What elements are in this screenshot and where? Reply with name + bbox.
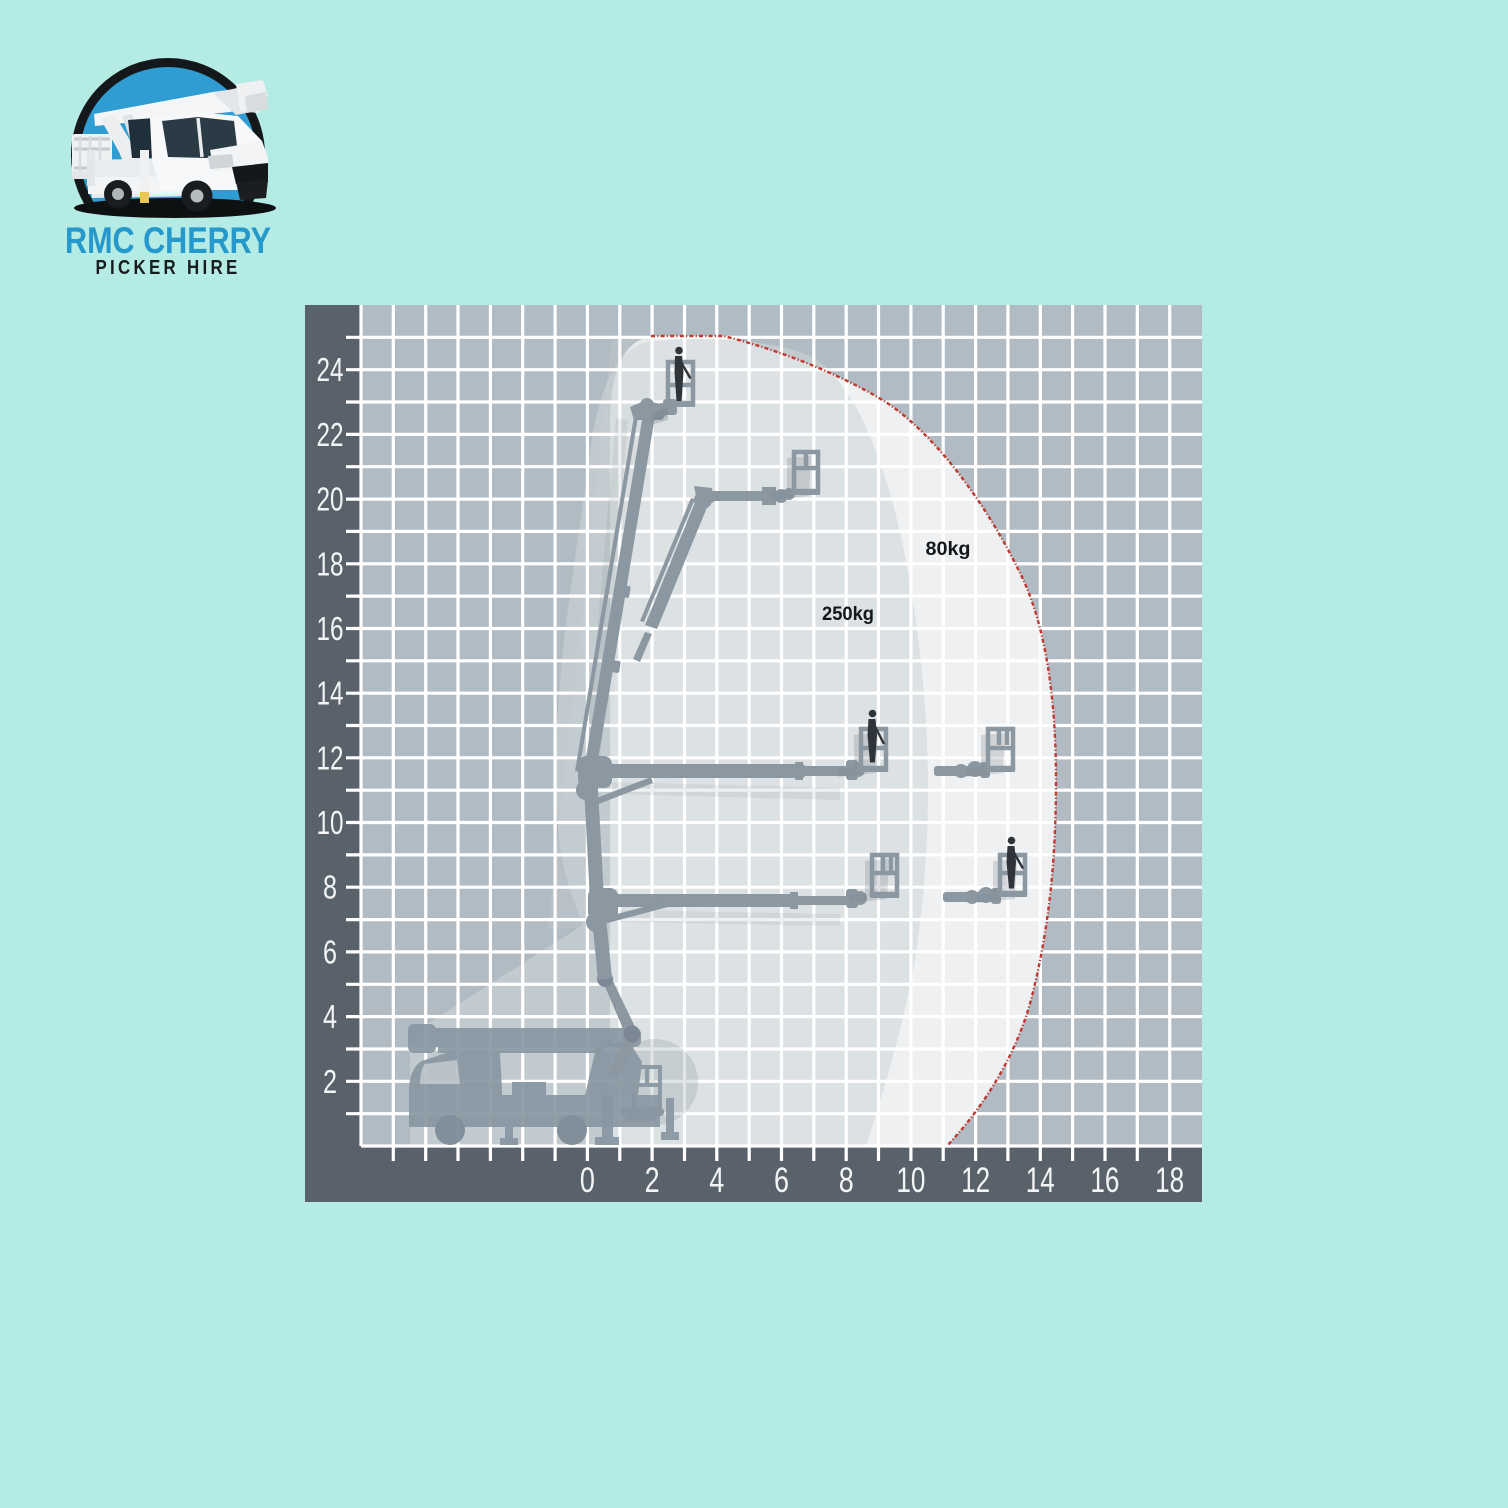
svg-text:8: 8 [323, 869, 337, 906]
svg-text:250kg: 250kg [822, 603, 874, 625]
svg-text:6: 6 [323, 933, 337, 970]
svg-text:16: 16 [317, 610, 344, 647]
svg-text:2: 2 [645, 1161, 660, 1200]
svg-text:16: 16 [1090, 1161, 1119, 1200]
svg-text:PICKER HIRE: PICKER HIRE [96, 256, 241, 279]
svg-text:14: 14 [1026, 1161, 1055, 1200]
svg-text:0: 0 [580, 1161, 595, 1200]
svg-text:20: 20 [317, 481, 344, 518]
svg-text:4: 4 [709, 1161, 724, 1200]
svg-text:12: 12 [961, 1161, 990, 1200]
svg-text:18: 18 [317, 545, 344, 582]
svg-text:22: 22 [317, 416, 344, 453]
svg-text:4: 4 [323, 998, 337, 1035]
svg-text:24: 24 [317, 351, 344, 388]
svg-text:80kg: 80kg [926, 538, 971, 560]
svg-text:14: 14 [317, 675, 344, 712]
svg-text:8: 8 [839, 1161, 854, 1200]
svg-text:10: 10 [896, 1161, 925, 1200]
svg-text:18: 18 [1155, 1161, 1184, 1200]
svg-text:RMC CHERRY: RMC CHERRY [65, 220, 271, 261]
svg-text:10: 10 [317, 804, 344, 841]
svg-text:12: 12 [317, 739, 344, 776]
svg-text:6: 6 [774, 1161, 789, 1200]
svg-text:2: 2 [323, 1063, 337, 1100]
